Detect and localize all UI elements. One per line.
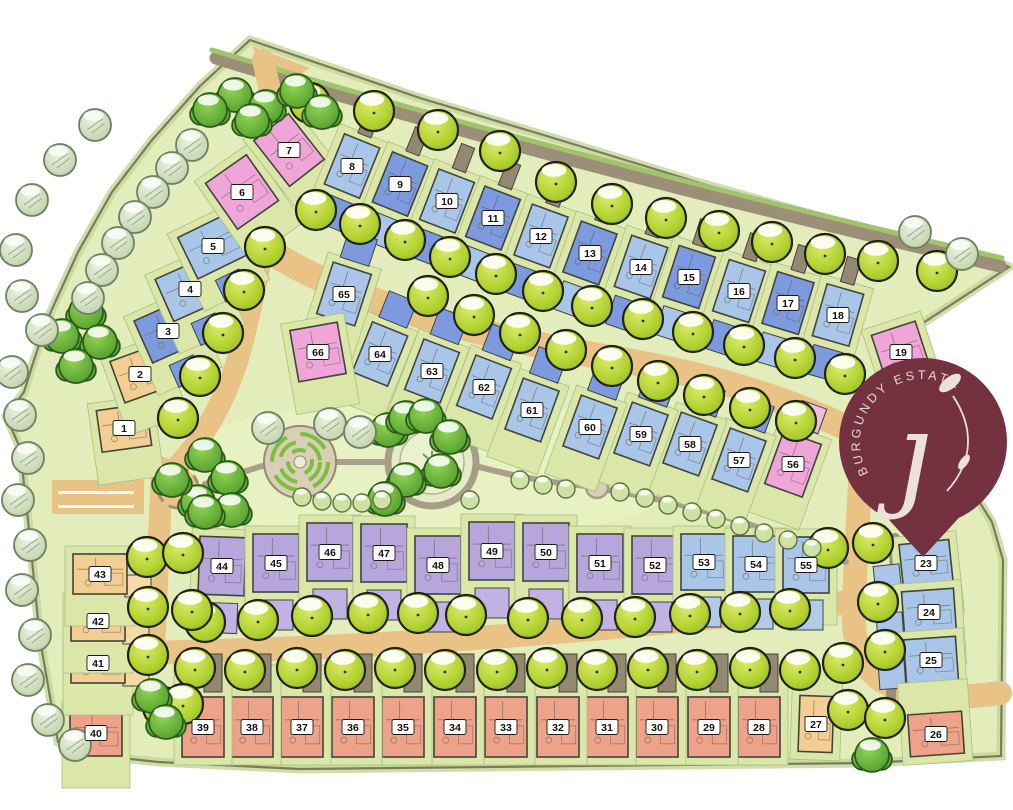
plot-label-14[interactable]: 14 [630, 260, 652, 275]
street-tree-icon [128, 587, 168, 627]
street-tree-icon [430, 237, 470, 277]
street-tree-icon [628, 648, 668, 688]
svg-text:60: 60 [584, 422, 596, 434]
street-tree-icon [615, 597, 655, 637]
svg-text:36: 36 [347, 722, 359, 734]
svg-text:25: 25 [925, 655, 937, 667]
svg-text:42: 42 [92, 616, 104, 628]
street-tree-icon [805, 234, 845, 274]
shrub-icon [659, 496, 677, 514]
plot-label-7[interactable]: 7 [278, 143, 300, 158]
street-tree-icon [180, 356, 220, 396]
street-tree-icon [480, 131, 520, 171]
svg-text:19: 19 [895, 347, 907, 359]
plot-label-56[interactable]: 56 [782, 457, 804, 472]
plot-label-32[interactable]: 32 [547, 720, 569, 735]
plot-label-41[interactable]: 41 [87, 656, 109, 671]
plot-label-45[interactable]: 45 [265, 556, 287, 571]
shrub-icon [373, 491, 391, 509]
svg-text:62: 62 [478, 382, 490, 394]
svg-text:65: 65 [338, 289, 350, 301]
street-tree-icon [527, 648, 567, 688]
street-tree-icon [354, 91, 394, 131]
street-tree-icon [770, 589, 810, 629]
pale-tree-icon [899, 216, 931, 248]
street-tree-icon [446, 595, 486, 635]
plot-label-28[interactable]: 28 [748, 720, 770, 735]
pale-tree-icon [16, 184, 48, 216]
pale-tree-icon [2, 484, 34, 516]
street-tree-icon [385, 220, 425, 260]
street-tree-icon [730, 648, 770, 688]
parking-bay-marking [58, 491, 134, 494]
plot-label-42[interactable]: 42 [87, 614, 109, 629]
street-tree-icon [476, 254, 516, 294]
pale-tree-icon [344, 416, 376, 448]
svg-text:13: 13 [584, 248, 596, 260]
svg-text:16: 16 [733, 286, 745, 298]
street-tree-icon [592, 184, 632, 224]
plot-label-57[interactable]: 57 [728, 453, 750, 468]
plot-label-37[interactable]: 37 [291, 720, 313, 735]
street-tree-icon [572, 286, 612, 326]
plot-26[interactable] [897, 679, 973, 766]
plot-label-60[interactable]: 60 [579, 420, 601, 435]
plot-label-18[interactable]: 18 [827, 308, 849, 323]
svg-text:58: 58 [684, 439, 696, 451]
svg-text:8: 8 [349, 161, 355, 173]
svg-text:52: 52 [649, 560, 661, 572]
svg-text:43: 43 [94, 569, 106, 581]
plot-label-47[interactable]: 47 [373, 546, 395, 561]
plot-label-11[interactable]: 11 [482, 211, 504, 226]
plot-label-24[interactable]: 24 [918, 605, 940, 620]
svg-text:29: 29 [703, 722, 715, 734]
street-tree-icon [425, 650, 465, 690]
site-plan: 1234567891011121314151617181923242526272… [0, 0, 1013, 810]
street-tree-icon [592, 346, 632, 386]
street-tree-icon [127, 537, 167, 577]
shrub-icon [636, 489, 654, 507]
svg-text:64: 64 [374, 349, 386, 361]
street-tree-icon [172, 590, 212, 630]
plot-label-48[interactable]: 48 [427, 558, 449, 573]
street-tree-icon [546, 330, 586, 370]
svg-text:48: 48 [432, 560, 444, 572]
svg-text:49: 49 [486, 546, 498, 558]
svg-text:32: 32 [552, 722, 564, 734]
svg-text:27: 27 [810, 719, 822, 731]
plot-label-12[interactable]: 12 [530, 229, 552, 244]
svg-text:61: 61 [526, 405, 538, 417]
plot-label-29[interactable]: 29 [698, 720, 720, 735]
svg-text:41: 41 [92, 658, 104, 670]
shrub-icon [534, 476, 552, 494]
svg-text:66: 66 [312, 347, 324, 359]
svg-text:59: 59 [635, 429, 647, 441]
street-tree-icon [238, 600, 278, 640]
shrub-icon [511, 471, 529, 489]
pale-tree-icon [19, 619, 51, 651]
street-tree-icon [853, 523, 893, 563]
svg-text:63: 63 [426, 366, 438, 378]
plot-label-3[interactable]: 3 [157, 324, 179, 339]
svg-text:7: 7 [286, 145, 292, 157]
plot-label-36[interactable]: 36 [342, 720, 364, 735]
plot-label-8[interactable]: 8 [341, 159, 363, 174]
svg-text:15: 15 [683, 272, 695, 284]
shrub-icon [611, 483, 629, 501]
plot-label-35[interactable]: 35 [392, 720, 414, 735]
svg-text:3: 3 [165, 326, 171, 338]
street-tree-icon [638, 361, 678, 401]
street-tree-icon [677, 650, 717, 690]
svg-text:1: 1 [121, 423, 127, 435]
plot-label-30[interactable]: 30 [646, 720, 668, 735]
svg-text:45: 45 [270, 558, 282, 570]
svg-text:23: 23 [920, 558, 932, 570]
plot-label-5[interactable]: 5 [202, 239, 224, 254]
street-tree-icon [224, 270, 264, 310]
plot-label-62[interactable]: 62 [473, 380, 495, 395]
plot-label-23[interactable]: 23 [915, 556, 937, 571]
plot-label-53[interactable]: 53 [693, 555, 715, 570]
plot-label-65[interactable]: 65 [333, 287, 355, 302]
street-tree-icon [623, 299, 663, 339]
street-tree-icon [163, 533, 203, 573]
shrub-icon [707, 510, 725, 528]
plot-label-66[interactable]: 66 [307, 345, 329, 360]
svg-text:14: 14 [635, 262, 647, 274]
svg-text:4: 4 [187, 284, 193, 296]
parking-bay-marking [58, 505, 134, 508]
street-tree-icon [325, 650, 365, 690]
street-tree-icon [128, 635, 168, 675]
pale-tree-icon [26, 314, 58, 346]
pale-tree-icon [0, 234, 32, 266]
shrub-icon [803, 539, 821, 557]
street-tree-icon [277, 648, 317, 688]
street-tree-icon [865, 630, 905, 670]
pale-tree-icon [32, 704, 64, 736]
svg-text:57: 57 [733, 455, 745, 467]
plot-label-6[interactable]: 6 [231, 185, 253, 200]
plot-label-13[interactable]: 13 [579, 246, 601, 261]
shrub-icon [333, 494, 351, 512]
plot-label-64[interactable]: 64 [369, 347, 391, 362]
pale-tree-icon [72, 282, 104, 314]
street-tree-icon [670, 594, 710, 634]
plot-label-59[interactable]: 59 [630, 427, 652, 442]
plot-label-46[interactable]: 46 [319, 545, 341, 560]
street-tree-icon [375, 648, 415, 688]
svg-text:51: 51 [594, 558, 606, 570]
street-tree-icon [340, 204, 380, 244]
plot-label-51[interactable]: 51 [589, 556, 611, 571]
street-tree-icon [752, 222, 792, 262]
svg-text:10: 10 [441, 196, 453, 208]
street-tree-icon [720, 592, 760, 632]
svg-text:30: 30 [651, 722, 663, 734]
plot-label-16[interactable]: 16 [728, 284, 750, 299]
svg-text:38: 38 [246, 722, 258, 734]
street-tree-icon [175, 648, 215, 688]
street-tree-icon [865, 698, 905, 738]
pale-tree-icon [314, 408, 346, 440]
svg-text:6: 6 [239, 187, 245, 199]
pale-tree-icon [946, 238, 978, 270]
street-tree-icon [699, 211, 739, 251]
pale-tree-icon [14, 529, 46, 561]
svg-text:47: 47 [378, 548, 390, 560]
site-plan-canvas: 1234567891011121314151617181923242526272… [0, 0, 1013, 810]
street-tree-icon [673, 312, 713, 352]
street-tree-icon [477, 650, 517, 690]
svg-text:50: 50 [540, 547, 552, 559]
svg-text:44: 44 [216, 561, 228, 573]
shrub-icon [779, 531, 797, 549]
street-tree-icon [500, 313, 540, 353]
plot-label-15[interactable]: 15 [678, 270, 700, 285]
street-tree-icon [348, 593, 388, 633]
street-tree-icon [823, 643, 863, 683]
plot-label-43[interactable]: 43 [89, 567, 111, 582]
plot-label-38[interactable]: 38 [241, 720, 263, 735]
svg-text:2: 2 [137, 369, 143, 381]
svg-text:33: 33 [500, 722, 512, 734]
street-tree-icon [536, 162, 576, 202]
svg-text:24: 24 [923, 607, 935, 619]
plot-label-4[interactable]: 4 [179, 282, 201, 297]
svg-text:18: 18 [832, 310, 844, 322]
street-tree-icon [684, 375, 724, 415]
svg-text:5: 5 [210, 241, 216, 253]
street-tree-icon [225, 650, 265, 690]
svg-text:53: 53 [698, 557, 710, 569]
plot-label-61[interactable]: 61 [521, 403, 543, 418]
svg-text:55: 55 [800, 560, 812, 572]
svg-text:37: 37 [296, 722, 308, 734]
plot-label-39[interactable]: 39 [192, 720, 214, 735]
plot-label-17[interactable]: 17 [777, 296, 799, 311]
pale-tree-icon [6, 280, 38, 312]
street-tree-icon [858, 582, 898, 622]
street-tree-icon [292, 596, 332, 636]
plot-label-33[interactable]: 33 [495, 720, 517, 735]
street-tree-icon [245, 227, 285, 267]
svg-text:46: 46 [324, 547, 336, 559]
svg-text:31: 31 [601, 722, 613, 734]
street-tree-icon [398, 593, 438, 633]
pale-tree-icon [4, 399, 36, 431]
street-tree-icon [296, 190, 336, 230]
plot-label-55[interactable]: 55 [795, 558, 817, 573]
street-tree-icon [508, 598, 548, 638]
pale-tree-icon [12, 442, 44, 474]
shrub-icon [731, 517, 749, 535]
plot-label-58[interactable]: 58 [679, 437, 701, 452]
street-tree-icon [408, 276, 448, 316]
svg-text:39: 39 [197, 722, 209, 734]
street-tree-icon [454, 295, 494, 335]
plot-label-50[interactable]: 50 [535, 545, 557, 560]
street-tree-icon [523, 271, 563, 311]
svg-text:35: 35 [397, 722, 409, 734]
svg-text:56: 56 [787, 459, 799, 471]
pale-tree-icon [0, 356, 28, 388]
plot-label-10[interactable]: 10 [436, 194, 458, 209]
svg-text:40: 40 [90, 728, 102, 740]
pale-tree-icon [86, 254, 118, 286]
street-tree-icon [775, 338, 815, 378]
plot-label-25[interactable]: 25 [920, 653, 942, 668]
street-tree-icon [724, 325, 764, 365]
plot-label-49[interactable]: 49 [481, 544, 503, 559]
shrub-icon [683, 503, 701, 521]
plot-label-9[interactable]: 9 [389, 177, 411, 192]
street-tree-icon [562, 598, 602, 638]
street-tree-icon [158, 398, 198, 438]
shrub-icon [293, 488, 311, 506]
street-tree-icon [828, 690, 868, 730]
svg-text:54: 54 [750, 559, 762, 571]
svg-text:34: 34 [449, 722, 461, 734]
shrub-icon [353, 494, 371, 512]
shrub-icon [755, 524, 773, 542]
pale-tree-icon [44, 144, 76, 176]
street-tree-icon [203, 313, 243, 353]
street-tree-icon [577, 650, 617, 690]
svg-text:9: 9 [397, 179, 403, 191]
plot-label-31[interactable]: 31 [596, 720, 618, 735]
parking-strip [52, 480, 144, 514]
street-tree-icon [858, 241, 898, 281]
shrub-icon [461, 491, 479, 509]
svg-text:17: 17 [782, 298, 794, 310]
plot-label-54[interactable]: 54 [745, 557, 767, 572]
svg-text:11: 11 [487, 213, 498, 225]
plot-label-26[interactable]: 26 [925, 727, 947, 742]
plot-label-40[interactable]: 40 [85, 726, 107, 741]
shrub-icon [313, 492, 331, 510]
svg-text:12: 12 [535, 231, 547, 243]
pale-tree-icon [6, 574, 38, 606]
plot-label-44[interactable]: 44 [211, 559, 233, 574]
plot-label-1[interactable]: 1 [113, 421, 135, 436]
plot-label-2[interactable]: 2 [129, 367, 151, 382]
pale-tree-icon [12, 664, 44, 696]
svg-text:26: 26 [930, 729, 942, 741]
pale-tree-icon [252, 412, 284, 444]
street-tree-icon [730, 388, 770, 428]
street-tree-icon [776, 401, 816, 441]
svg-text:28: 28 [753, 722, 765, 734]
pale-tree-icon [79, 109, 111, 141]
street-tree-icon [780, 650, 820, 690]
street-tree-icon [418, 110, 458, 150]
shrub-icon [557, 480, 575, 498]
plot-label-27[interactable]: 27 [805, 717, 827, 732]
plot-label-52[interactable]: 52 [644, 558, 666, 573]
plot-label-34[interactable]: 34 [444, 720, 466, 735]
plot-label-19[interactable]: 19 [890, 345, 912, 360]
street-tree-icon [646, 198, 686, 238]
plot-label-63[interactable]: 63 [421, 364, 443, 379]
